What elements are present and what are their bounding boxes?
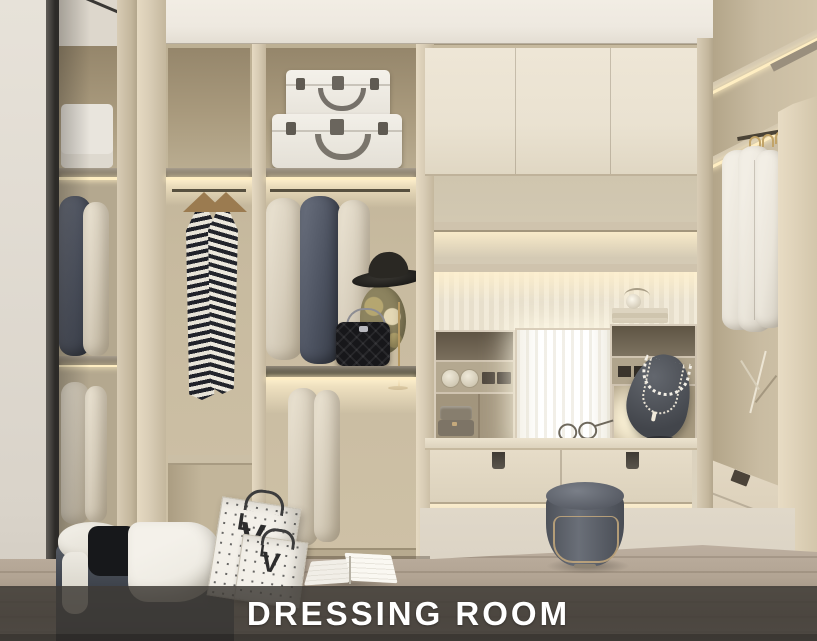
caption-banner: DRESSING ROOM xyxy=(0,586,817,641)
suitcase-upper-clasp-left xyxy=(296,78,305,90)
small-box-dark-2 xyxy=(497,372,511,384)
drawer-handle-left xyxy=(492,452,505,469)
frame-column-right xyxy=(697,38,713,588)
eyeglasses-temple xyxy=(594,419,614,427)
storage-case-clasp xyxy=(452,422,457,426)
suitcase-lower xyxy=(272,114,402,168)
suitcase-upper-clasp-right xyxy=(370,78,379,90)
open-book xyxy=(306,548,396,588)
drawer-handle-right xyxy=(626,452,639,469)
vanity-tabletop xyxy=(425,438,697,450)
storage-case-top xyxy=(440,406,472,420)
table-lamp-sphere xyxy=(626,294,641,309)
suitcase-upper xyxy=(286,70,390,118)
banner-bottom-edge xyxy=(0,634,817,641)
lv-monogram-front: V L xyxy=(256,545,290,581)
frame-column-b xyxy=(252,44,266,560)
necklace-pendant xyxy=(651,411,657,422)
small-box-dark xyxy=(482,372,495,384)
garment-bag-beige-left xyxy=(266,198,302,360)
lit-shelf-1-glow xyxy=(434,232,697,258)
center-mid-shelf xyxy=(266,366,416,377)
lower-garment-bag-2 xyxy=(314,390,340,542)
decor-branch-twig xyxy=(740,360,760,390)
hanging-scarf-2 xyxy=(208,212,238,394)
ties-shelf xyxy=(166,168,252,177)
cubby-unit-left xyxy=(434,330,519,446)
lit-shelf-2-glow xyxy=(434,272,697,302)
handbag xyxy=(336,322,390,366)
handbag-clasp xyxy=(359,326,368,332)
garment-crease xyxy=(754,160,755,320)
dresser-handle-1 xyxy=(730,469,750,486)
decor-branch-stem xyxy=(749,351,766,414)
book-page-right xyxy=(344,553,397,583)
wooden-hanger-2 xyxy=(205,192,247,212)
ties-top-compartment xyxy=(168,48,250,168)
books-stack xyxy=(612,308,668,323)
jewelry-box xyxy=(618,366,631,377)
suitcase-upper-handle xyxy=(318,88,366,111)
suitcase-lower-clasp-right xyxy=(378,122,388,135)
mirror-shade-overlay xyxy=(59,0,137,578)
cubby-left-bottom-row xyxy=(436,394,513,440)
center-shelf xyxy=(266,168,416,177)
wardrobe-bay-center xyxy=(266,44,416,560)
right-wardrobe xyxy=(713,0,817,588)
cubby-right-top-empty xyxy=(612,326,695,356)
frame-column-a xyxy=(137,0,166,578)
garment-bag-navy xyxy=(300,196,340,364)
stool-foot xyxy=(574,564,596,568)
cabinet-door-seam-2 xyxy=(610,48,611,174)
suitcase-upper-lock xyxy=(332,76,344,90)
cabinet-door-seam-1 xyxy=(515,48,516,174)
stool-top xyxy=(546,482,624,510)
suitcase-lower-handle xyxy=(315,134,371,160)
suitcase-lower-clasp-left xyxy=(286,122,296,135)
book-spine xyxy=(349,556,351,584)
cubby-left-top-empty xyxy=(436,332,513,360)
lit-shelf-1 xyxy=(434,222,697,232)
suitcase-lower-lock xyxy=(330,119,344,135)
mirror-frame xyxy=(46,0,59,578)
stool-brass-trim xyxy=(553,516,619,563)
cubby-left-mid-row xyxy=(436,362,513,392)
center-clothes-rail xyxy=(270,189,410,192)
glass-jar-2 xyxy=(460,369,479,388)
dressing-room-photo: V L V L DRESSING ROOM xyxy=(0,0,817,641)
mirror-panel xyxy=(59,0,137,578)
caption-text: DRESSING ROOM xyxy=(247,595,570,633)
hanger-hook-2 xyxy=(762,134,774,147)
stool xyxy=(546,482,624,568)
overhead-cabinet xyxy=(425,48,697,176)
cubby-left-divider xyxy=(478,394,480,440)
wardrobe-bay-ties xyxy=(166,44,252,560)
ties-lower-shelf xyxy=(168,455,252,465)
right-side-panel xyxy=(778,0,817,588)
wall-left xyxy=(0,0,46,641)
glass-jar xyxy=(441,369,460,388)
hat-crown xyxy=(367,251,409,280)
